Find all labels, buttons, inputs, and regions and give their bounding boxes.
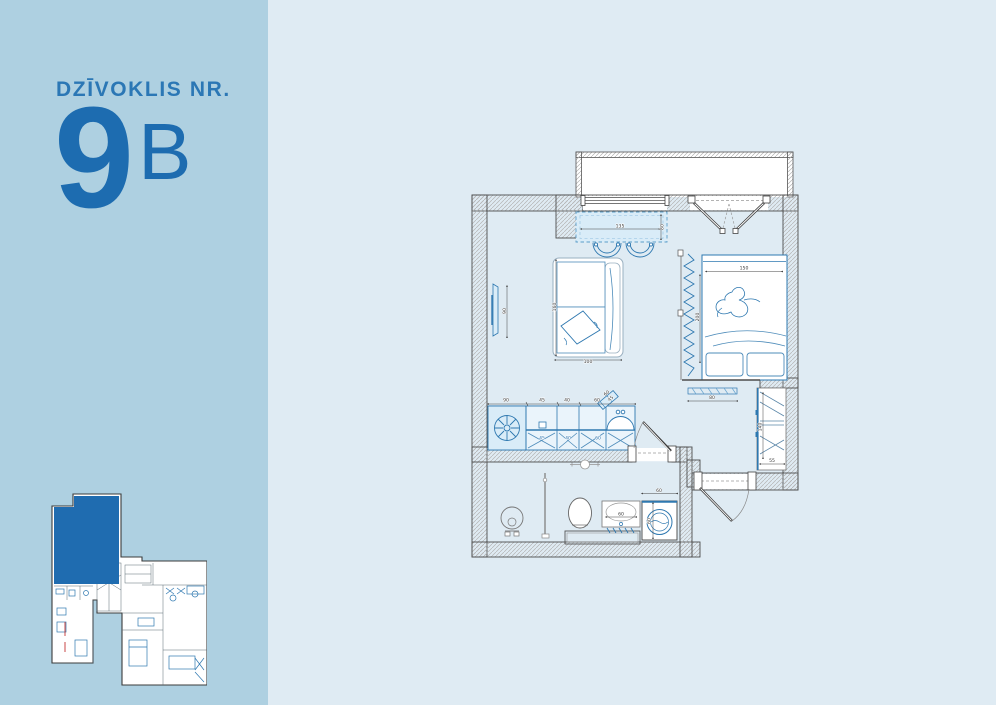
dimension-label: 60	[595, 435, 601, 441]
dimension-label: 200	[695, 313, 701, 322]
dimension-label: 150	[740, 266, 749, 272]
dimension-label: 60	[618, 512, 624, 518]
bathroom	[501, 473, 677, 544]
dimension-label: 100	[584, 359, 593, 365]
toilet	[569, 498, 592, 528]
heater	[501, 507, 523, 536]
dimension-label: 60	[647, 518, 653, 524]
floor-plan: 1358090160100150200801405590454060604545…	[460, 140, 810, 565]
dimension-label: 45	[539, 435, 545, 441]
apartment-number-digit: 9	[54, 86, 132, 230]
dimension-label: 80	[660, 224, 666, 230]
sofa	[553, 258, 623, 360]
dimension-label: 55	[769, 458, 775, 464]
sidebar: DZĪVOKLIS NR. 9 B	[0, 0, 268, 705]
shower-rail	[542, 473, 549, 538]
dimension-label: 160	[552, 303, 558, 312]
building-overview-plan	[45, 490, 207, 690]
balcony	[576, 152, 793, 197]
chairs	[593, 243, 654, 257]
dimension-label: 40	[564, 398, 570, 404]
dimension-label: 60	[656, 488, 662, 494]
apartment-number: 9 B	[54, 86, 191, 230]
washing-machine	[642, 494, 677, 541]
dimension-label: 90	[502, 308, 508, 314]
dimension-label: 40	[565, 435, 571, 441]
dimension-label: 90	[503, 398, 509, 404]
bed	[700, 255, 787, 380]
dimension-label: 80	[709, 395, 715, 401]
curtain-partition	[678, 250, 694, 380]
apartment-9b-highlight	[54, 496, 119, 584]
bath-bench	[565, 531, 640, 544]
apartment-number-letter: B	[138, 112, 191, 192]
dimension-label: 135	[616, 224, 625, 230]
bedroom-threshold	[682, 380, 760, 401]
dimension-label: 140	[758, 423, 764, 432]
dimension-label: 45	[539, 398, 545, 404]
dimension-label: 60	[594, 398, 600, 404]
